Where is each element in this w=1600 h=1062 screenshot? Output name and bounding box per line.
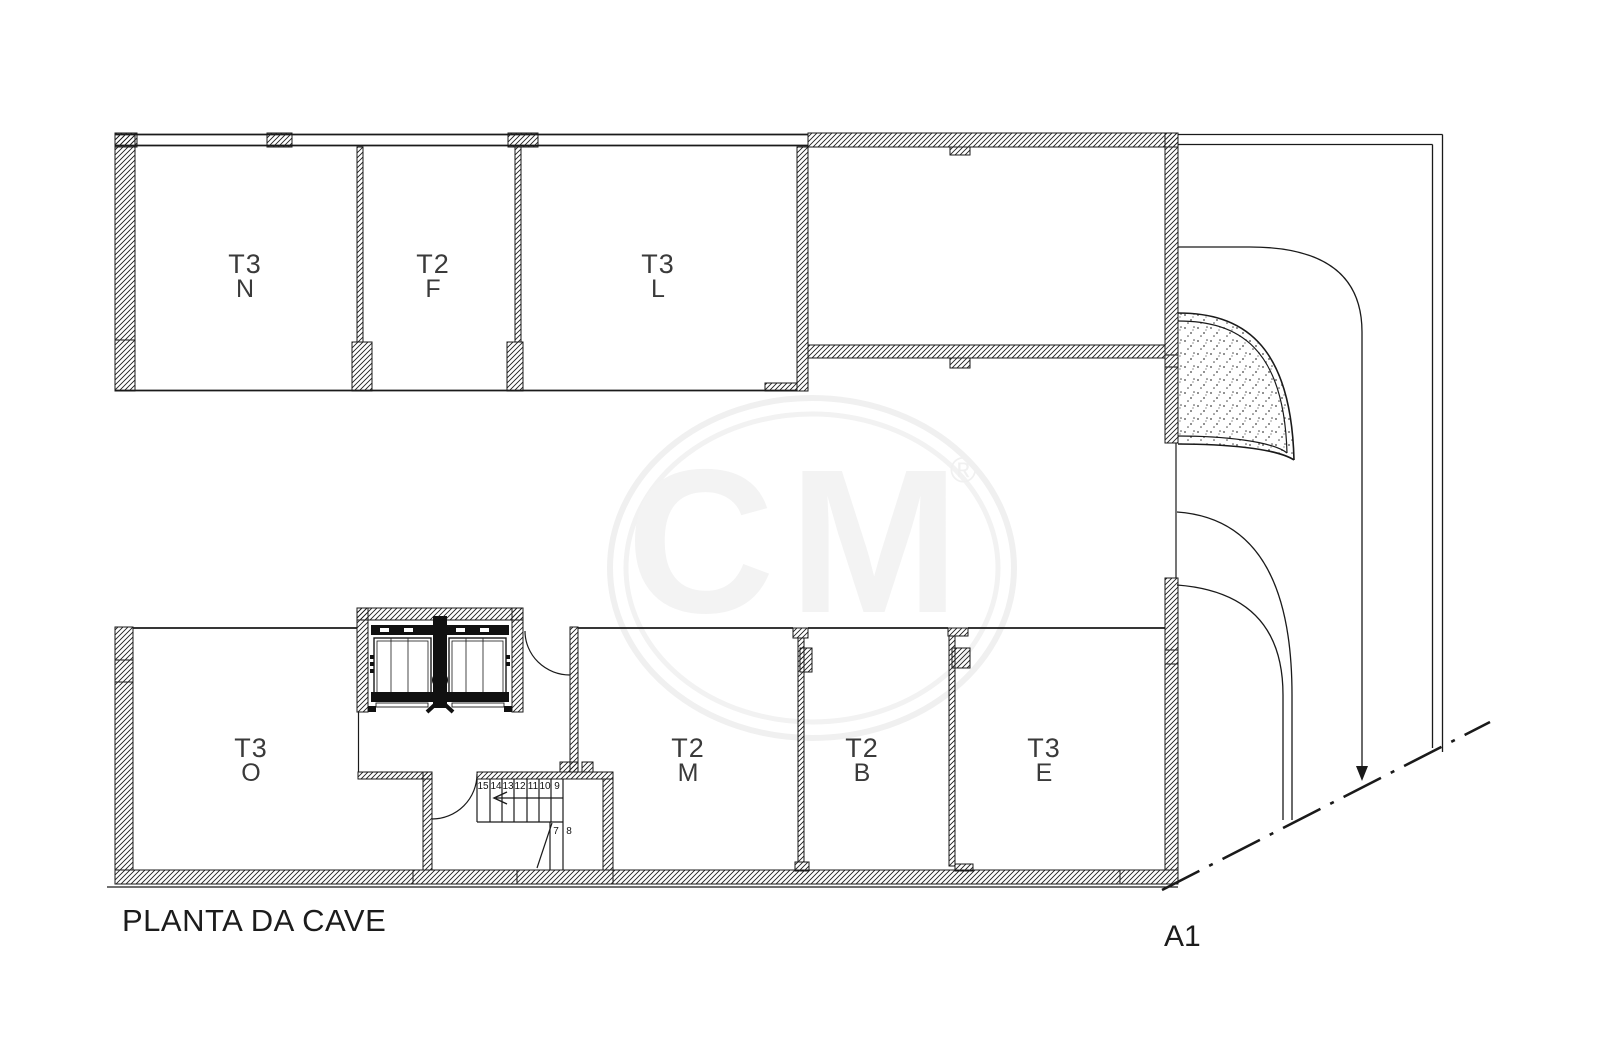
floor-plan-canvas: CM ® [0,0,1600,1062]
step-number: 8 [566,826,572,837]
step-number: 13 [502,781,514,792]
room-letter: L [651,275,665,303]
room-letter: N [236,275,254,303]
floor-plan-page: CM ® [0,0,1600,1062]
step-number: 11 [528,781,539,792]
elevator-cars-icon [368,616,512,712]
step-number: 10 [539,781,551,792]
room-letter: F [425,275,440,303]
room-letter: B [854,759,871,787]
step-number: 7 [553,826,559,837]
sheet-label: A1 [1164,920,1201,953]
watermark-letters: CM [627,427,974,656]
room-letter: O [241,759,260,787]
room-letter: E [1036,759,1053,787]
plan-title: PLANTA DA CAVE [122,903,386,938]
step-number: 9 [554,781,560,792]
step-number: 12 [514,781,526,792]
step-number: 15 [477,781,489,792]
watermark-registered-icon: ® [950,449,977,490]
step-number: 14 [490,781,502,792]
room-letter: M [678,759,699,787]
